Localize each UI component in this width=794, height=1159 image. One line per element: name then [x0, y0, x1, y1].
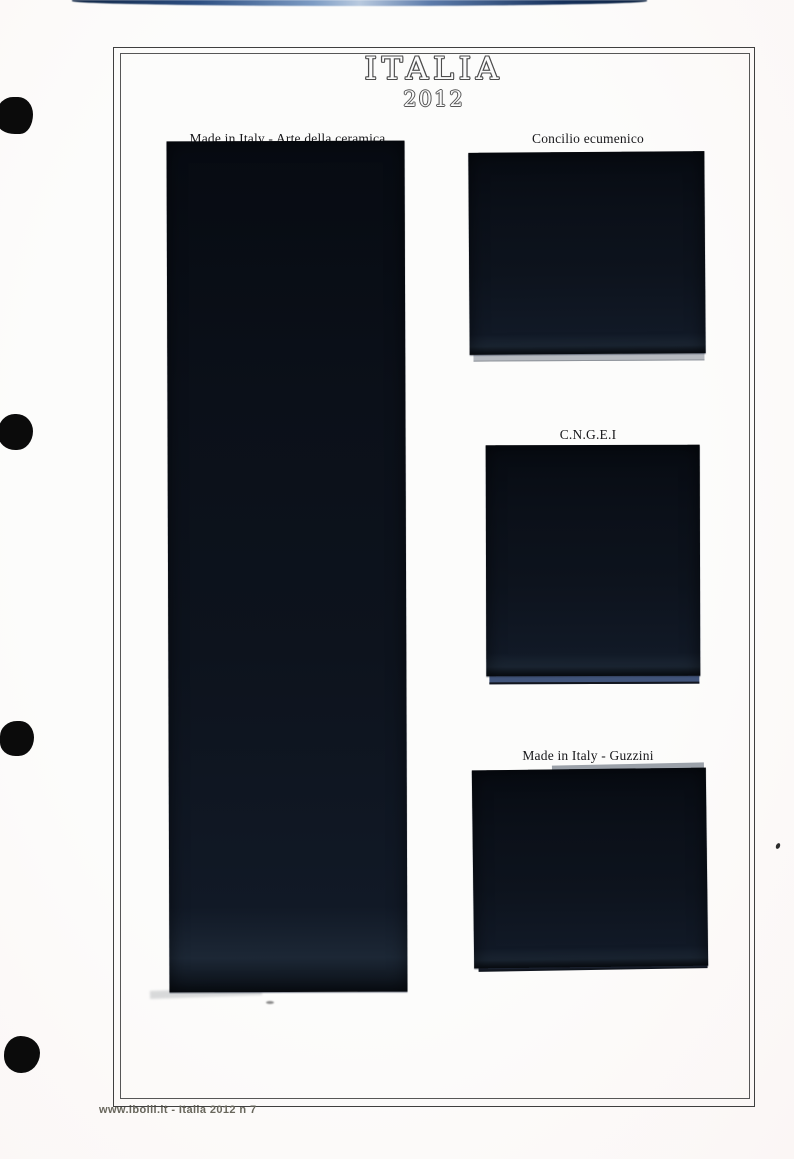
page-title: ITALIA: [284, 54, 584, 85]
stamp-mount-concilio: [468, 151, 705, 355]
stamp-mount-cngei: [486, 445, 701, 677]
footer-watermark: www.ibolli.it - Italia 2012 n 7: [99, 1104, 256, 1116]
stamp-label-concilio: Concilio ecumenico: [470, 131, 706, 147]
stamp-label-guzzini: Made in Italy - Guzzini: [462, 748, 714, 764]
scanned-album-page: ITALIA 2012 Made in Italy - Arte della c…: [0, 0, 794, 1159]
binder-hole-3: [0, 721, 34, 756]
stamp-label-cngei: C.N.G.E.I: [470, 427, 706, 443]
binder-hole-4: [4, 1036, 40, 1073]
stamp-mount-arte-ceramica: [167, 141, 408, 993]
stamp-mount-guzzini: [472, 768, 708, 969]
scan-edge-strip: [72, 0, 647, 6]
page-year: 2012: [284, 87, 584, 111]
title-block: ITALIA 2012: [284, 54, 584, 111]
scan-speck: [775, 842, 781, 849]
binder-hole-1: [0, 97, 33, 134]
scan-smudge: [266, 1001, 274, 1004]
binder-hole-2: [0, 414, 33, 450]
